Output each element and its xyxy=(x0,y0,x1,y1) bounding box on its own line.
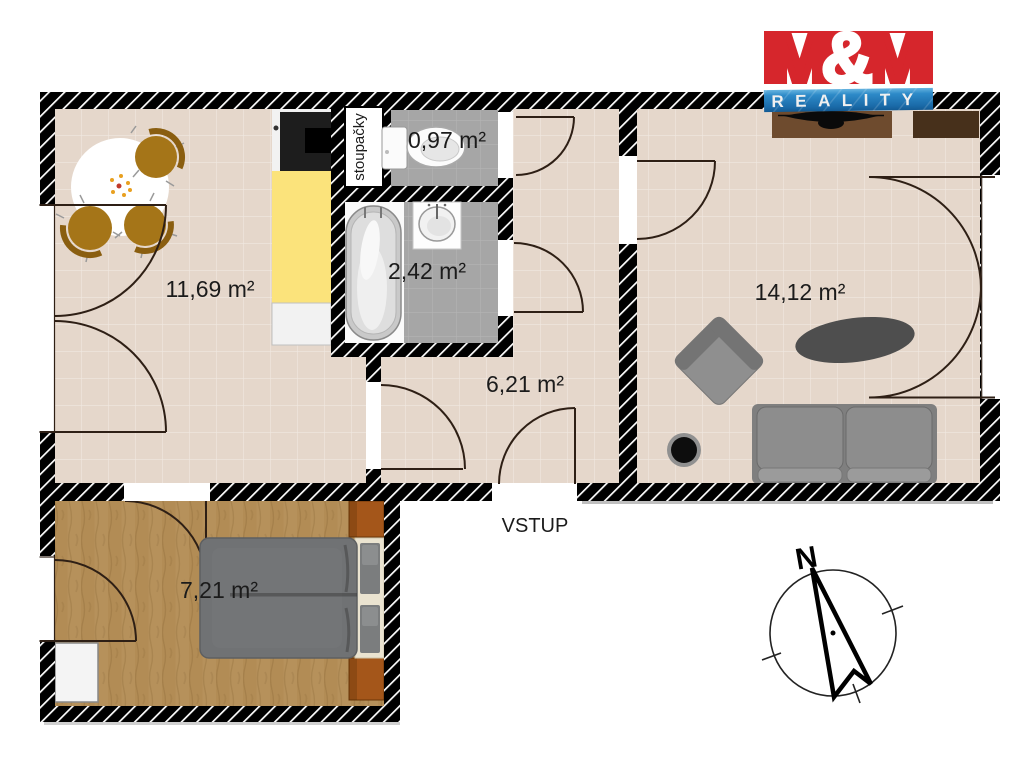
svg-text:VSTUP: VSTUP xyxy=(502,515,569,537)
svg-text:&: & xyxy=(821,19,873,99)
svg-text:M: M xyxy=(868,20,928,100)
svg-text:0,97 m²: 0,97 m² xyxy=(408,127,486,153)
svg-text:stoupačky: stoupačky xyxy=(351,113,368,181)
svg-text:14,12 m²: 14,12 m² xyxy=(755,279,846,305)
svg-text:6,21 m²: 6,21 m² xyxy=(486,371,564,397)
svg-text:N: N xyxy=(793,540,820,576)
svg-text:2,42 m²: 2,42 m² xyxy=(388,258,466,284)
svg-text:7,21 m²: 7,21 m² xyxy=(180,577,258,603)
svg-text:11,69 m²: 11,69 m² xyxy=(165,276,254,302)
svg-text:REALITY: REALITY xyxy=(771,90,924,111)
